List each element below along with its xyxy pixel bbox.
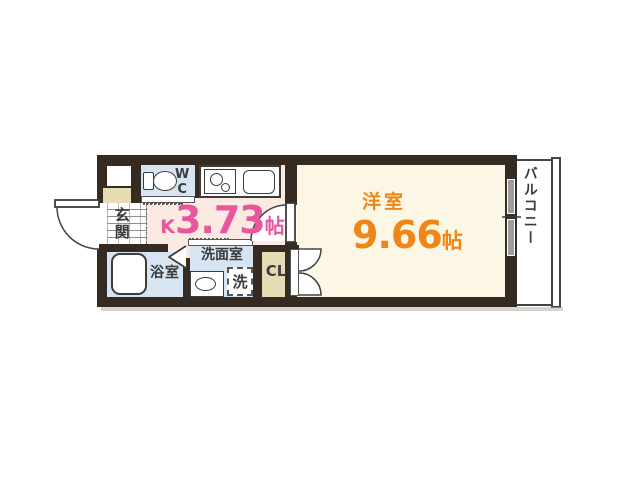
western-room-name: 洋室 bbox=[352, 193, 482, 213]
entrance-label: 玄関 bbox=[113, 207, 129, 243]
kitchen-prefix: K bbox=[160, 218, 175, 238]
balcony-label: バルコニー bbox=[522, 166, 537, 304]
closet-label: CL bbox=[262, 264, 290, 280]
washroom-label: 洗面室 bbox=[191, 248, 253, 263]
western-room-area-value: 9.66 bbox=[352, 216, 442, 256]
kitchen-area-value: 3.73 bbox=[175, 201, 265, 241]
door-symbols bbox=[0, 0, 640, 480]
toilet-room-label: WC bbox=[175, 167, 189, 197]
western-room-label: 洋室 9.66 帖 bbox=[352, 193, 482, 256]
entrance-door-swing-icon bbox=[55, 200, 99, 249]
kitchen-area-unit: 帖 bbox=[265, 216, 285, 237]
floor-plan: 洗 K3.73帖 洋室 9.66 bbox=[0, 0, 640, 480]
bathroom-label: 浴室 bbox=[146, 266, 184, 281]
western-room-area-unit: 帖 bbox=[442, 230, 463, 252]
closet-double-door-icon bbox=[299, 249, 321, 295]
kitchen-area-label: K3.73帖 bbox=[160, 201, 285, 243]
